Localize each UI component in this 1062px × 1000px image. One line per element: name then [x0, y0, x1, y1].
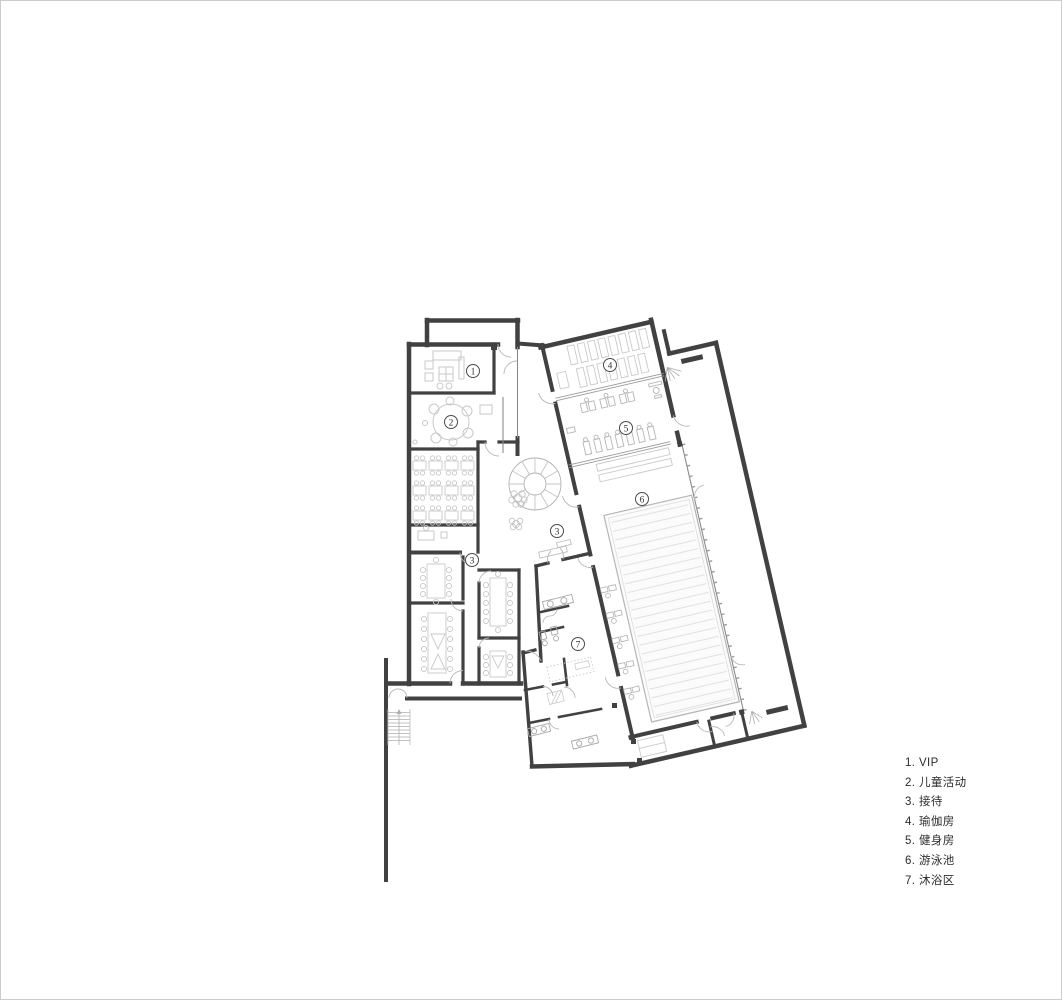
gym-equipment	[561, 381, 674, 458]
bath-mat-area	[547, 657, 594, 682]
column	[491, 344, 497, 350]
svg-text:6: 6	[640, 495, 645, 505]
room-marker-4: 4	[604, 359, 617, 372]
annex-door-arcs	[525, 548, 575, 729]
lower-sink-counter-2	[571, 735, 598, 749]
room-marker-7: 7	[572, 638, 585, 651]
exterior-stair	[388, 709, 410, 745]
svg-text:3: 3	[470, 556, 475, 566]
legend-item-3: 3. 接待	[905, 793, 967, 813]
left-wing	[386, 320, 543, 880]
tilted-wing	[528, 307, 804, 767]
deck-bench-south	[766, 705, 789, 715]
floor-plan: 12334567	[1, 1, 1062, 1000]
room-marker-5: 5	[620, 422, 633, 435]
meeting-room-a	[420, 557, 451, 604]
room-marker-6: 6	[636, 493, 649, 506]
plants	[509, 491, 527, 530]
room-marker-1: 1	[467, 365, 480, 378]
svg-text:2: 2	[449, 418, 454, 428]
small-office-furniture	[418, 526, 447, 541]
svg-text:7: 7	[576, 640, 581, 650]
south-strip-furniture	[637, 735, 666, 757]
legend-item-4: 4. 瑜伽房	[905, 813, 967, 833]
lobby	[509, 458, 571, 558]
room-marker-3: 3	[551, 525, 564, 538]
meeting-room-d	[483, 651, 512, 677]
lobby-benches	[539, 540, 572, 559]
vip-room-furniture	[425, 351, 464, 389]
shower-icon-south	[747, 709, 764, 725]
meeting-room-c	[483, 571, 512, 632]
yoga-mats	[551, 328, 655, 392]
legend-item-2: 2. 儿童活动	[905, 774, 967, 794]
room-marker-2: 2	[445, 416, 458, 429]
svg-text:5: 5	[624, 424, 629, 434]
legend-item-6: 6. 游泳池	[905, 852, 967, 872]
deck-bench-north	[681, 354, 704, 364]
legend-item-1: 1. VIP	[905, 754, 967, 774]
legend: 1. VIP2. 儿童活动3. 接待4. 瑜伽房5. 健身房6. 游泳池7. 沐…	[905, 754, 967, 891]
shower-hatch	[547, 690, 564, 704]
legend-item-7: 7. 沐浴区	[905, 872, 967, 892]
legend-item-5: 5. 健身房	[905, 832, 967, 852]
svg-text:3: 3	[555, 527, 560, 537]
tilted-partitions	[553, 373, 679, 467]
page: 12334567 1. VIP2. 儿童活动3. 接待4. 瑜伽房5. 健身房6…	[0, 0, 1062, 1000]
left-wing-walls	[386, 320, 543, 880]
meeting-room-b	[421, 613, 452, 673]
svg-text:1: 1	[471, 367, 476, 377]
office-chairs	[414, 456, 472, 525]
svg-text:4: 4	[608, 361, 613, 371]
swimming-pool	[604, 495, 739, 722]
room-marker-3: 3	[466, 554, 479, 567]
office-desks	[413, 456, 474, 525]
